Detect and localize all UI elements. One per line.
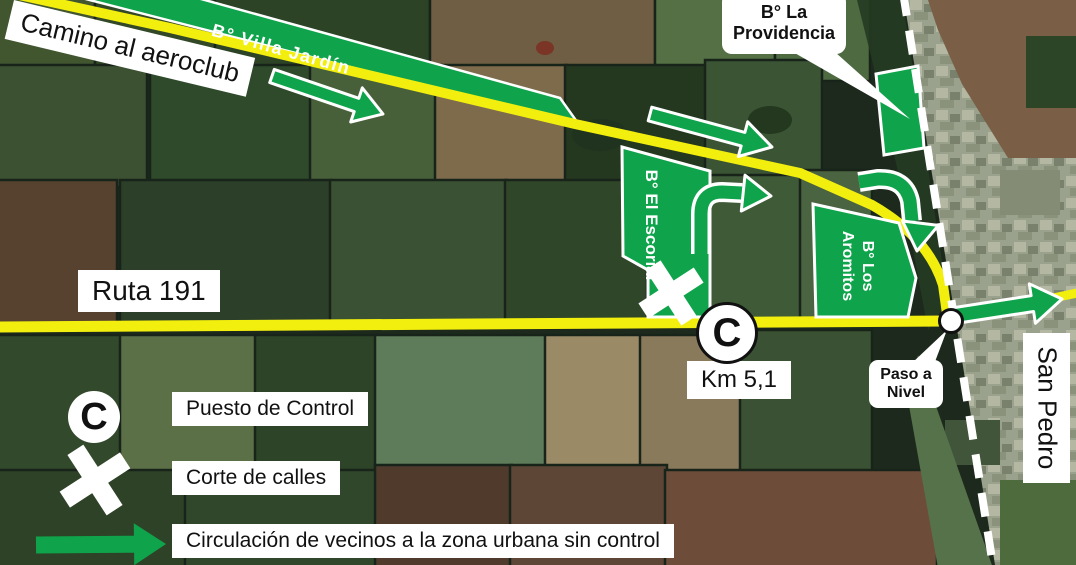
arrow-to-san-pedro — [951, 284, 1062, 324]
paso-line1: Paso a — [880, 366, 932, 384]
railway-line — [903, 0, 994, 565]
arrow-escorial-exit-head — [741, 175, 771, 211]
providencia-line1: B° La — [761, 2, 807, 23]
control-post-marker: C — [696, 302, 758, 364]
legend-label-circulation: Circulación de vecinos a la zona urbana … — [172, 524, 674, 558]
aromitos-line2: Aromitos — [837, 231, 857, 301]
san-pedro-label-box: San Pedro — [1023, 333, 1070, 483]
callout-providencia: B° La Providencia — [722, 0, 846, 54]
legend-label-closure: Corte de calles — [172, 461, 340, 495]
legend-x-icon — [57, 442, 133, 518]
level-crossing-marker — [938, 308, 964, 334]
legend-arrow-icon — [36, 523, 166, 565]
road-ruta-191 — [0, 321, 948, 327]
km-label: Km 5,1 — [687, 361, 791, 399]
legend-control-icon: C — [68, 391, 120, 443]
aromitos-line1: B° Los — [857, 241, 877, 292]
ruta-191-label: Ruta 191 — [78, 270, 220, 312]
san-pedro-label: San Pedro — [1032, 347, 1062, 470]
paso-line2: Nivel — [887, 384, 925, 402]
callout-paso-a-nivel: Paso a Nivel — [869, 360, 943, 408]
providencia-line2: Providencia — [733, 23, 835, 44]
barrio-aromitos-label: B° Los Aromitos — [837, 220, 877, 312]
legend-label-control: Puesto de Control — [172, 392, 368, 426]
barrio-escorial-label: B° El Escorial — [640, 150, 662, 300]
map-canvas: B° Villa Jardín Camino al aeroclub Ruta … — [0, 0, 1076, 565]
